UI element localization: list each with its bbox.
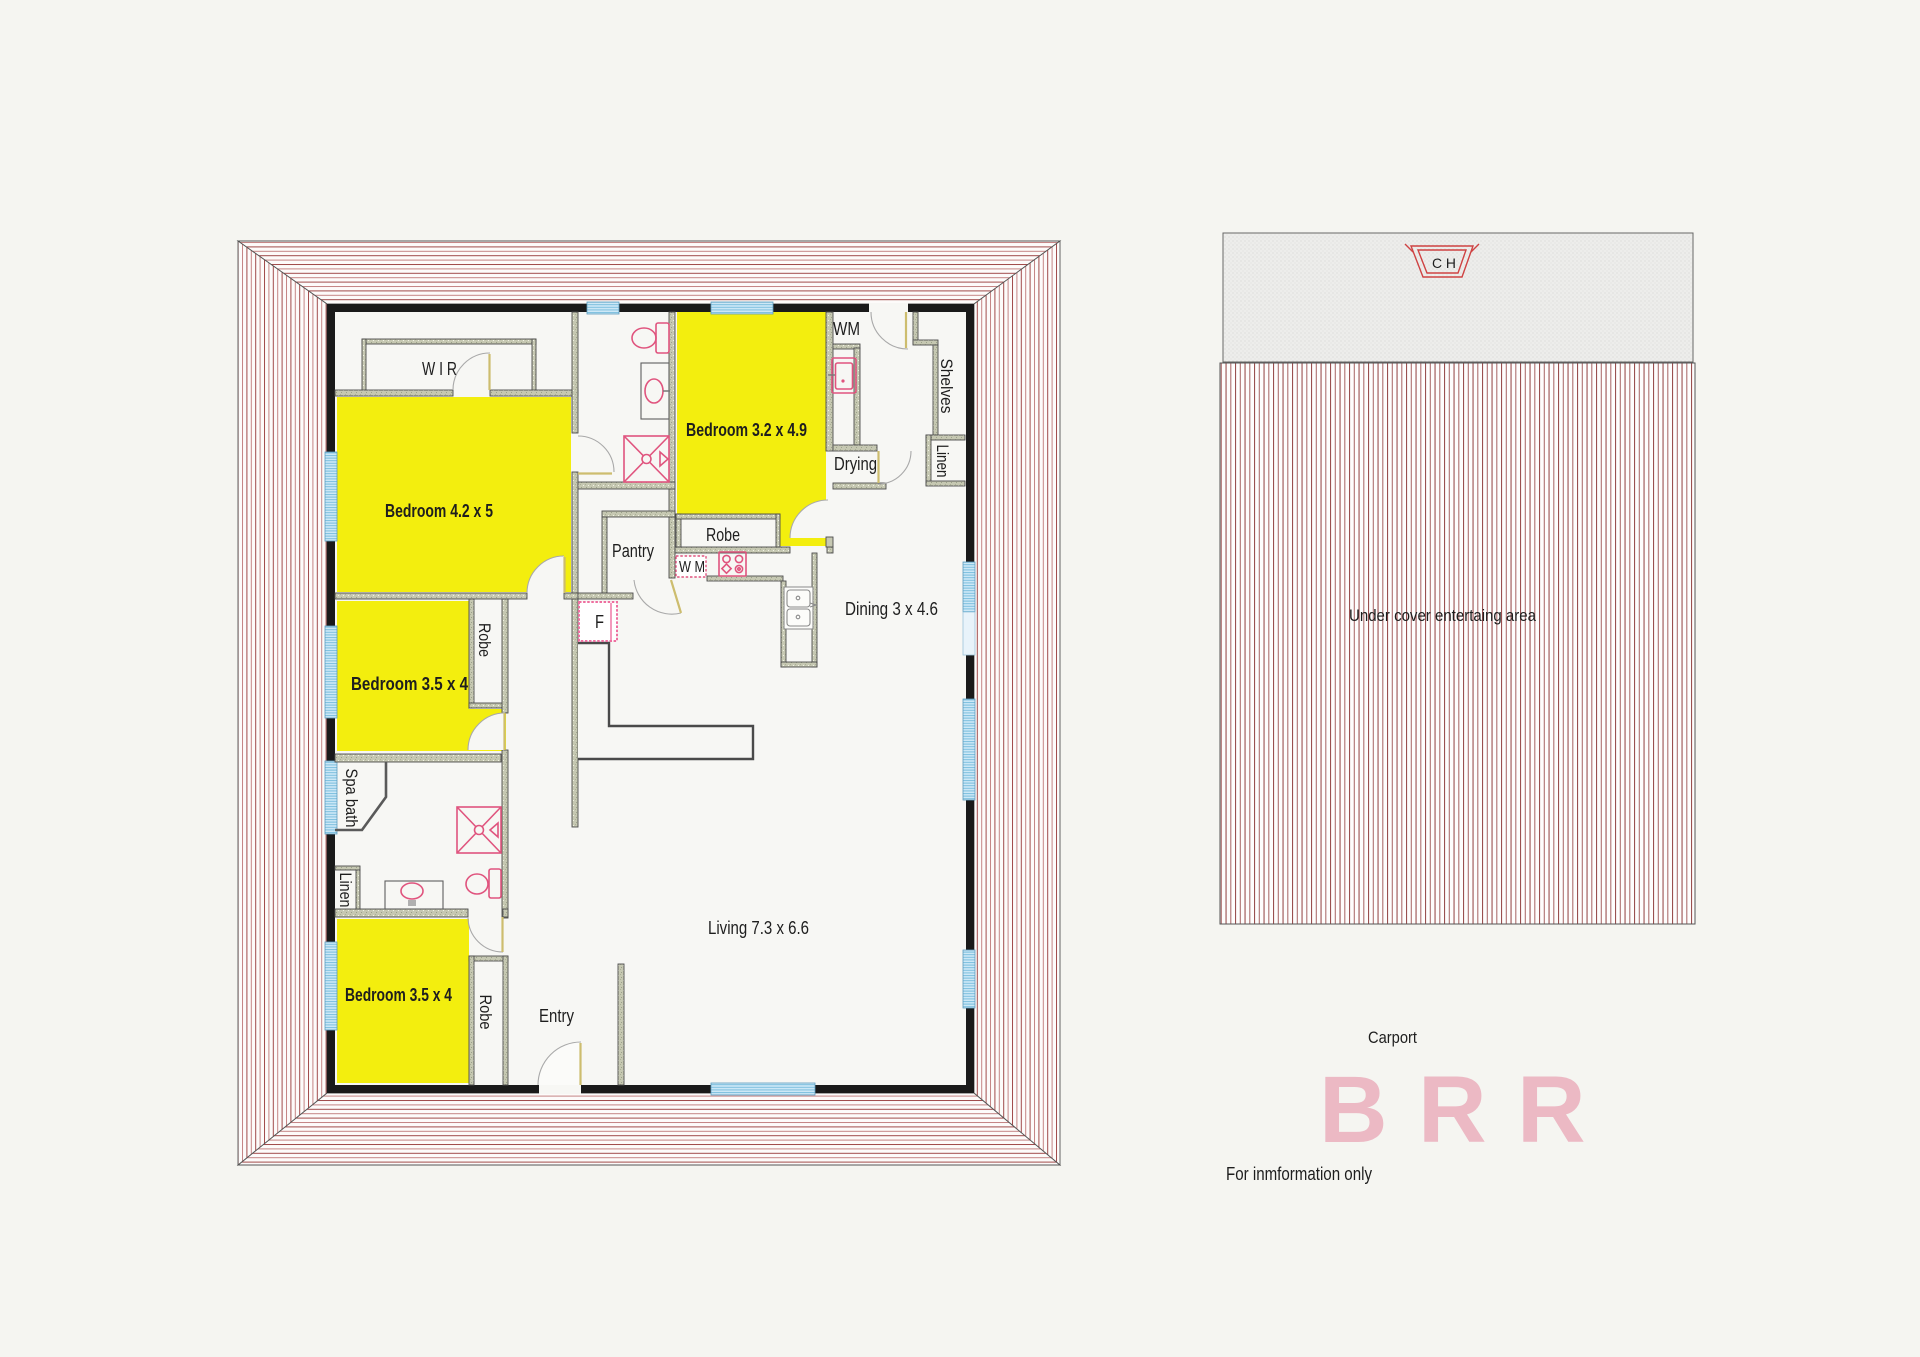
svg-text:Spa bath: Spa bath: [342, 769, 361, 828]
svg-text:Linen: Linen: [933, 445, 952, 478]
svg-text:Entry: Entry: [539, 1006, 574, 1026]
svg-text:C H: C H: [1432, 255, 1456, 271]
svg-text:Under cover entertaing area: Under cover entertaing area: [1349, 606, 1536, 625]
svg-text:Drying: Drying: [834, 454, 877, 474]
svg-text:Robe: Robe: [706, 525, 740, 545]
svg-text:Carport: Carport: [1368, 1028, 1417, 1047]
svg-text:W M: W M: [679, 559, 705, 576]
svg-text:Dining 3 x 4.6: Dining 3 x 4.6: [845, 599, 938, 619]
svg-text:Robe: Robe: [476, 995, 495, 1030]
svg-text:Robe: Robe: [475, 623, 494, 657]
svg-text:For inmformation only: For inmformation only: [1226, 1164, 1372, 1184]
svg-text:Living 7.3 x 6.6: Living 7.3 x 6.6: [708, 918, 809, 938]
svg-text:Bedroom 3.5 x 4: Bedroom 3.5 x 4: [345, 985, 452, 1005]
svg-text:Shelves: Shelves: [937, 359, 956, 414]
svg-text:Linen: Linen: [336, 873, 355, 908]
svg-text:F: F: [595, 612, 604, 632]
svg-text:Bedroom 3.5 x 4: Bedroom 3.5 x 4: [351, 674, 468, 694]
svg-text:Bedroom 4.2 x 5: Bedroom 4.2 x 5: [385, 501, 493, 521]
svg-text:Bedroom 3.2 x 4.9: Bedroom 3.2 x 4.9: [686, 420, 807, 440]
svg-text:WM: WM: [833, 319, 860, 339]
svg-text:W I R: W I R: [422, 359, 457, 379]
svg-text:B R R: B R R: [1319, 1057, 1588, 1163]
svg-text:Pantry: Pantry: [612, 541, 654, 561]
